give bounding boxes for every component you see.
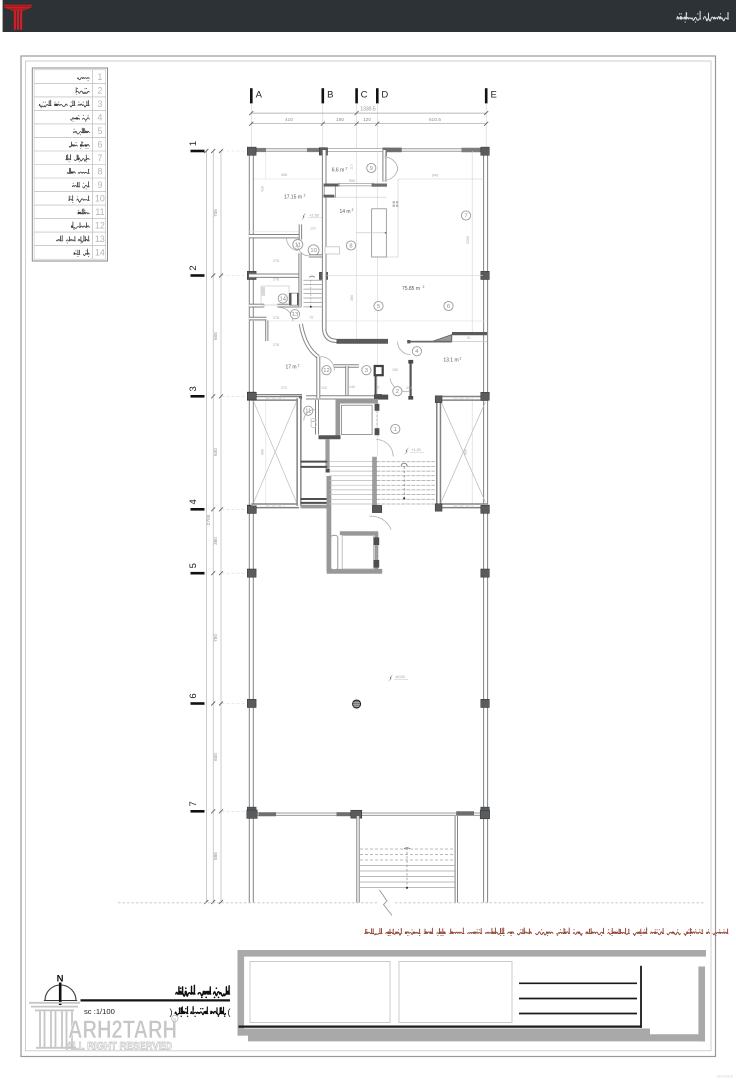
svg-text:278: 278 <box>273 343 279 347</box>
svg-text:12: 12 <box>95 221 105 231</box>
svg-text:75.85 m: 75.85 m <box>402 286 420 292</box>
svg-text:6: 6 <box>447 304 450 310</box>
svg-text:4: 4 <box>188 499 199 504</box>
svg-text:6: 6 <box>97 139 102 149</box>
svg-text:13: 13 <box>95 234 105 244</box>
svg-text:610.5: 610.5 <box>429 117 441 123</box>
svg-text:110: 110 <box>350 164 354 170</box>
svg-text:408: 408 <box>281 173 287 177</box>
svg-text:40: 40 <box>376 386 380 390</box>
svg-text:9: 9 <box>370 166 373 172</box>
svg-text:5200: 5200 <box>466 236 470 244</box>
svg-text:2: 2 <box>396 389 399 395</box>
svg-text:13: 13 <box>292 312 298 318</box>
svg-text:2: 2 <box>352 208 354 212</box>
svg-text:120: 120 <box>321 386 327 390</box>
svg-text:2: 2 <box>460 357 462 361</box>
svg-text:(: ( <box>228 1007 231 1017</box>
svg-text:410: 410 <box>285 117 293 123</box>
svg-text:3: 3 <box>365 368 368 374</box>
svg-text:4: 4 <box>97 112 102 122</box>
svg-text:750: 750 <box>213 634 218 642</box>
svg-text:2: 2 <box>423 285 425 289</box>
svg-text:1330.5: 1330.5 <box>360 106 376 112</box>
svg-text:360: 360 <box>350 295 354 301</box>
svg-text:278: 278 <box>273 316 279 320</box>
svg-text:270: 270 <box>281 386 287 390</box>
svg-text:278: 278 <box>273 259 279 263</box>
svg-text:E: E <box>491 90 497 101</box>
svg-text:140: 140 <box>349 385 355 389</box>
svg-text:705: 705 <box>213 209 218 217</box>
svg-text:6.6 m: 6.6 m <box>332 168 345 174</box>
svg-text:5: 5 <box>377 304 380 310</box>
svg-text:150: 150 <box>392 368 398 372</box>
svg-text:C: C <box>361 90 368 101</box>
svg-text:14: 14 <box>95 248 105 258</box>
svg-text:1: 1 <box>394 427 397 433</box>
svg-text:17 m: 17 m <box>285 365 296 371</box>
svg-text:13.1 m: 13.1 m <box>443 358 458 364</box>
svg-text:120: 120 <box>310 227 316 231</box>
svg-text:800: 800 <box>464 449 468 455</box>
svg-text:90: 90 <box>467 336 471 340</box>
svg-text:sc :1/100: sc :1/100 <box>84 1007 115 1016</box>
svg-text:A: A <box>256 90 263 101</box>
svg-text:tarh2tarh: tarh2tarh <box>717 1074 733 1079</box>
svg-text:ALL RIGHT RESERVED: ALL RIGHT RESERVED <box>66 1041 172 1053</box>
svg-text:10: 10 <box>95 194 105 204</box>
svg-text:3: 3 <box>97 99 102 109</box>
svg-text:11: 11 <box>95 207 104 217</box>
svg-text:360: 360 <box>213 537 218 545</box>
svg-text:±0.00: ±0.00 <box>395 675 404 679</box>
svg-text:7: 7 <box>464 214 467 220</box>
svg-text:9: 9 <box>97 180 102 190</box>
svg-text:D: D <box>381 90 388 101</box>
svg-text:885: 885 <box>213 852 218 860</box>
svg-text:R: R <box>173 1017 176 1022</box>
svg-text:550: 550 <box>349 179 355 183</box>
svg-text:3: 3 <box>188 386 199 391</box>
svg-text:605: 605 <box>213 332 218 340</box>
svg-text:418: 418 <box>406 386 412 390</box>
svg-text:600: 600 <box>213 753 218 761</box>
svg-text:2700: 2700 <box>206 514 212 525</box>
svg-text:1: 1 <box>188 141 199 146</box>
svg-text:2: 2 <box>97 85 102 95</box>
svg-text:278: 278 <box>273 278 279 282</box>
svg-text:17.15 m: 17.15 m <box>284 195 302 201</box>
svg-text:14 m: 14 m <box>339 209 350 215</box>
svg-text:+2.93: +2.93 <box>309 214 319 218</box>
svg-text:120: 120 <box>363 117 371 123</box>
svg-text:7: 7 <box>188 801 199 806</box>
svg-text:640: 640 <box>213 448 218 456</box>
svg-text:5: 5 <box>97 126 102 136</box>
svg-text:5: 5 <box>188 563 199 568</box>
svg-text:180: 180 <box>336 117 344 123</box>
svg-text:8: 8 <box>97 167 102 177</box>
svg-text:10: 10 <box>310 248 316 254</box>
svg-text:2: 2 <box>188 265 199 270</box>
svg-text:2: 2 <box>298 364 300 368</box>
svg-text:+1.20: +1.20 <box>411 448 421 452</box>
svg-text:7: 7 <box>97 153 102 163</box>
svg-text:B: B <box>327 90 333 101</box>
svg-text:800: 800 <box>261 449 265 455</box>
svg-text:2: 2 <box>304 194 306 198</box>
svg-text:6: 6 <box>188 693 199 698</box>
svg-text:39: 39 <box>310 316 314 320</box>
svg-text:1: 1 <box>97 72 102 82</box>
svg-text:940: 940 <box>432 174 438 178</box>
svg-text:8: 8 <box>349 244 352 250</box>
svg-text:420: 420 <box>261 186 265 192</box>
svg-text:14: 14 <box>280 297 287 303</box>
svg-text:2: 2 <box>346 167 348 171</box>
svg-text:12: 12 <box>323 368 329 374</box>
